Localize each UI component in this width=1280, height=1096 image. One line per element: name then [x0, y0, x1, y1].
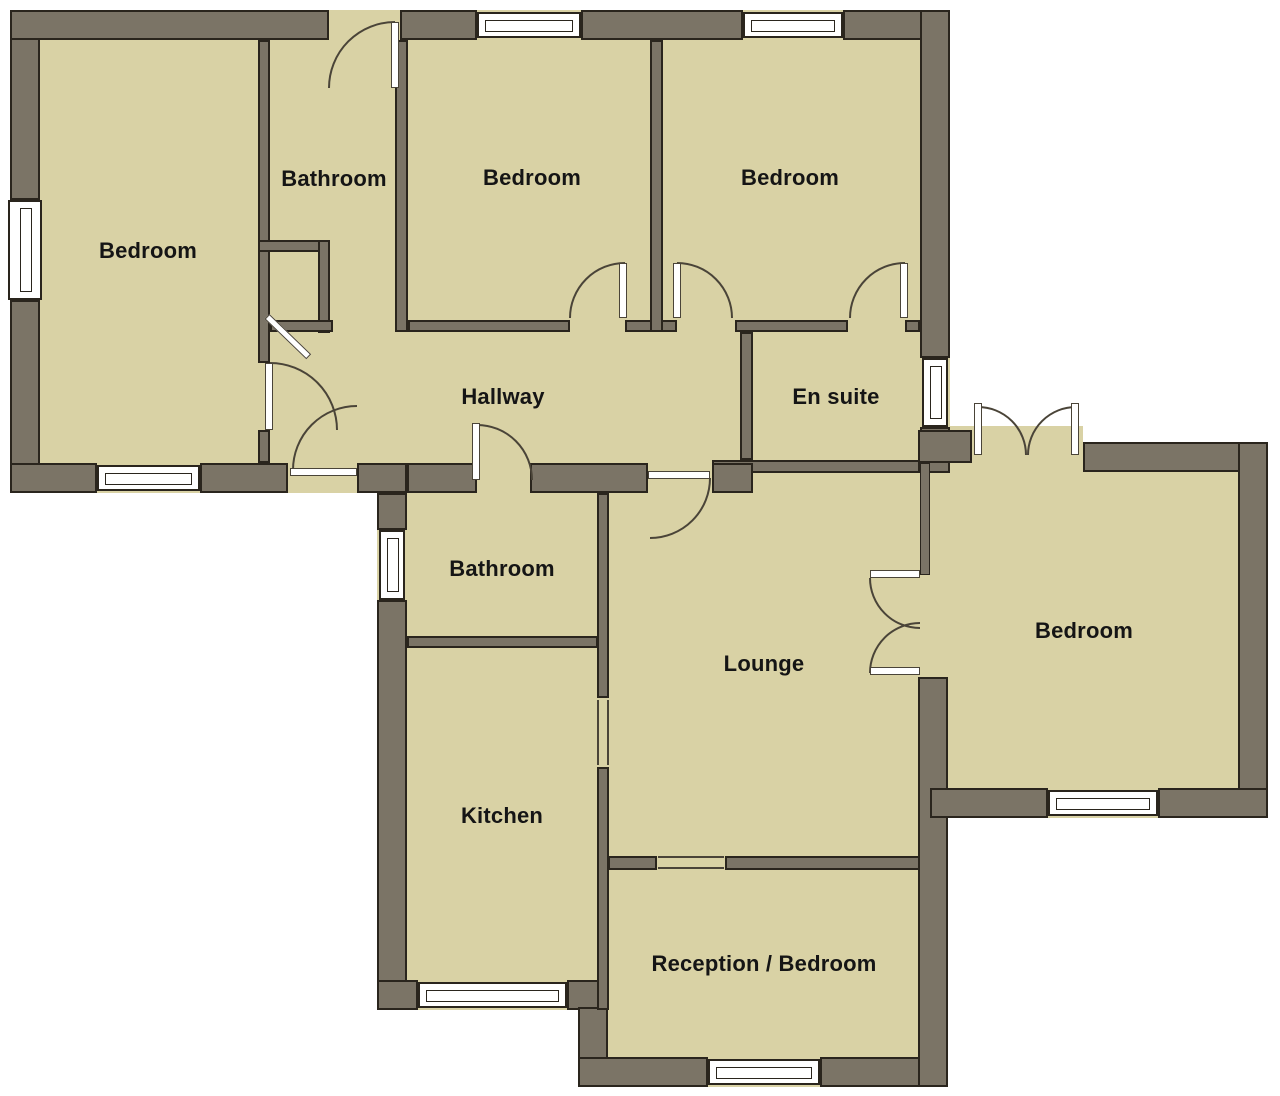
door-leaf-bedroomTL: [265, 363, 273, 430]
wall-wing-left-1: [377, 493, 407, 530]
opening-lounge-reception-line: [658, 867, 724, 869]
room-label-lounge: Lounge: [724, 651, 805, 677]
window-bedroomTL-west: [8, 200, 42, 300]
window-reception-south: [708, 1059, 820, 1085]
door-leaf-french-left: [974, 403, 982, 455]
window-kitchen-south: [418, 982, 567, 1008]
wall-kitchen-bottom-1: [377, 980, 418, 1010]
room-label-kitchen: Kitchen: [461, 803, 543, 829]
wall-bathroom2-right: [597, 493, 609, 698]
door-leaf-french-right: [1071, 403, 1079, 455]
wall-hallway-top-4: [905, 320, 920, 332]
wall-hallway-south-1: [407, 463, 477, 493]
wall-top-2: [400, 10, 477, 40]
room-label-reception-bedroom: Reception / Bedroom: [651, 951, 876, 977]
room-label-hallway: Hallway: [461, 384, 544, 410]
wall-top-1: [10, 10, 329, 40]
wall-bottomleft-3: [357, 463, 407, 493]
door-leaf-bathroom2: [472, 423, 480, 480]
door-leaf-double-bottom: [870, 667, 920, 675]
wall-bedroom-right-top: [1083, 442, 1243, 472]
window-bedroom-middle-north: [477, 12, 581, 38]
wall-bedroom-right-east: [1238, 442, 1268, 818]
wall-wing-left-2: [377, 600, 407, 1010]
wall-bedroomTL-door-stub: [258, 430, 270, 463]
wall-hallway-top-1: [408, 320, 570, 332]
window-bedroom-topright-north: [743, 12, 843, 38]
room-label-bedroom-top-middle: Bedroom: [483, 165, 581, 191]
floor-plan: Bedroom Bathroom Bedroom Bedroom Hallway…: [0, 0, 1280, 1096]
room-label-bedroom-top-left: Bedroom: [99, 238, 197, 264]
door-leaf-lounge-hallway: [648, 471, 710, 479]
door-leaf-bedroom-topright: [673, 263, 681, 318]
door-leaf-bathroom-top: [391, 22, 399, 88]
opening-kitchen-lounge-line: [607, 700, 609, 765]
wall-top-3: [581, 10, 743, 40]
wall-lounge-bedroom-thin: [920, 463, 930, 575]
wall-hallway-south-3: [712, 463, 753, 493]
wall-right-upper: [920, 10, 950, 358]
opening-kitchen-lounge-line: [597, 700, 599, 765]
room-label-en-suite: En suite: [792, 384, 879, 410]
wall-reception-right: [918, 677, 948, 1087]
wall-bottomleft-1: [10, 463, 97, 493]
wall-bedroom-right-bottom-2: [1158, 788, 1268, 818]
wall-ensuite-left: [740, 332, 753, 460]
wall-bathroom2-bottom: [407, 636, 598, 648]
door-leaf-bedroom-middle: [619, 263, 627, 318]
room-label-bathroom-top: Bathroom: [281, 166, 387, 192]
window-bedroomTL-south: [97, 465, 200, 491]
wall-bottomleft-2: [200, 463, 288, 493]
room-label-bathroom-inner: Bathroom: [449, 556, 555, 582]
wall-entrance-left-block: [918, 430, 972, 463]
wall-lounge-reception: [725, 856, 920, 870]
wall-hallway-top-3: [735, 320, 848, 332]
door-leaf-double-top: [870, 570, 920, 578]
door-leaf-side-entrance: [290, 468, 357, 476]
wall-bedrooms-partition: [650, 40, 663, 332]
wall-hallway-south-2: [530, 463, 648, 493]
window-ensuite-east: [922, 358, 948, 427]
wall-bedroom-right-bottom-1: [930, 788, 1048, 818]
window-bedroom-right-south: [1048, 790, 1158, 816]
wall-lounge-bottom-stub: [608, 856, 657, 870]
room-label-bedroom-right: Bedroom: [1035, 618, 1133, 644]
wall-kitchen-right: [597, 767, 609, 1010]
room-label-bedroom-top-right: Bedroom: [741, 165, 839, 191]
window-bathroom2-west: [379, 530, 405, 600]
door-leaf-ensuite: [900, 263, 908, 318]
opening-lounge-reception-line: [658, 856, 724, 858]
wall-reception-bottom-1: [578, 1057, 708, 1087]
